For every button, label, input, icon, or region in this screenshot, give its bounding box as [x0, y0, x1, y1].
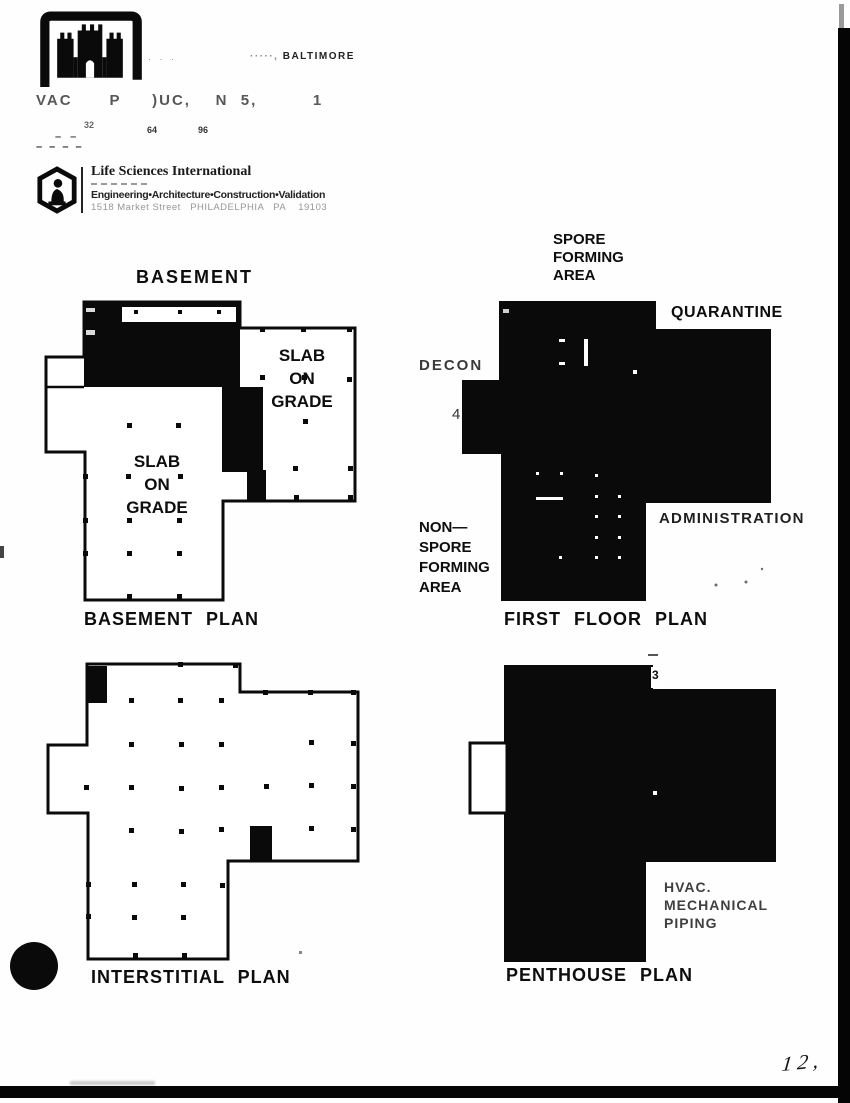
scanned-drawing-page: · · · ·····, BALTIMORE VAC P )UC, N 5, 1… — [0, 0, 850, 1103]
handwritten-page-number: 12, — [780, 1048, 825, 1077]
firm-tagline: Engineering•Architecture•Construction•Va… — [91, 189, 325, 201]
bottom-border-bar — [0, 1086, 850, 1098]
punch-hole-mark — [10, 942, 58, 990]
scale-tick-32: 32 — [84, 120, 94, 130]
scale-dashes-bottom: – – – – — [36, 141, 84, 153]
firm-address: 1518 Market Street PHILADELPHIA PA 19103 — [91, 202, 327, 213]
scale-tick-64: 64 — [147, 125, 157, 135]
penthouse-caption: PENTHOUSE PLAN — [506, 965, 693, 987]
district-faded-prefix: ·····, — [250, 51, 278, 62]
administration-label: ADMINISTRATION — [659, 510, 805, 528]
faded-scan-marks: · · · — [148, 54, 177, 64]
section-marker-3: 3 — [652, 668, 659, 682]
left-edge-scan-mark — [0, 546, 4, 558]
basement-title: BASEMENT — [136, 267, 253, 289]
non-spore-forming-area-label: NON— SPORE FORMING AREA — [419, 518, 490, 598]
slab-on-grade-label-right: SLAB ON GRADE — [262, 344, 342, 413]
firm-name-underline — [91, 183, 147, 185]
letterhead-divider — [81, 167, 83, 213]
right-border-bar — [838, 28, 850, 1103]
scale-tick-96: 96 — [198, 125, 208, 135]
army-corps-castle-logo — [36, 10, 144, 88]
district-name: BALTIMORE — [283, 51, 355, 62]
bottom-scan-smudge — [70, 1081, 155, 1085]
castle-icon — [36, 10, 144, 88]
hexagon-scientist-icon — [36, 166, 78, 214]
hvac-mechanical-piping-label: HVAC. MECHANICAL PIPING — [664, 878, 768, 932]
project-title-line: VAC P )UC, N 5, 1 — [36, 92, 323, 109]
life-sciences-logo-icon — [36, 166, 78, 214]
basement-caption: BASEMENT PLAN — [84, 609, 259, 631]
first-floor-caption: FIRST FLOOR PLAN — [504, 609, 708, 631]
firm-name: Life Sciences International — [91, 164, 251, 180]
spore-forming-area-label: SPORE FORMING AREA — [553, 231, 624, 285]
district-line: ·····, BALTIMORE — [250, 51, 355, 62]
slab-on-grade-label-lower: SLAB ON GRADE — [117, 450, 197, 519]
basement-plan-drawing — [40, 295, 360, 605]
first-floor-plan-drawing — [455, 295, 775, 605]
interstitial-caption: INTERSTITIAL PLAN — [91, 967, 291, 989]
interstitial-plan-drawing — [44, 660, 364, 965]
